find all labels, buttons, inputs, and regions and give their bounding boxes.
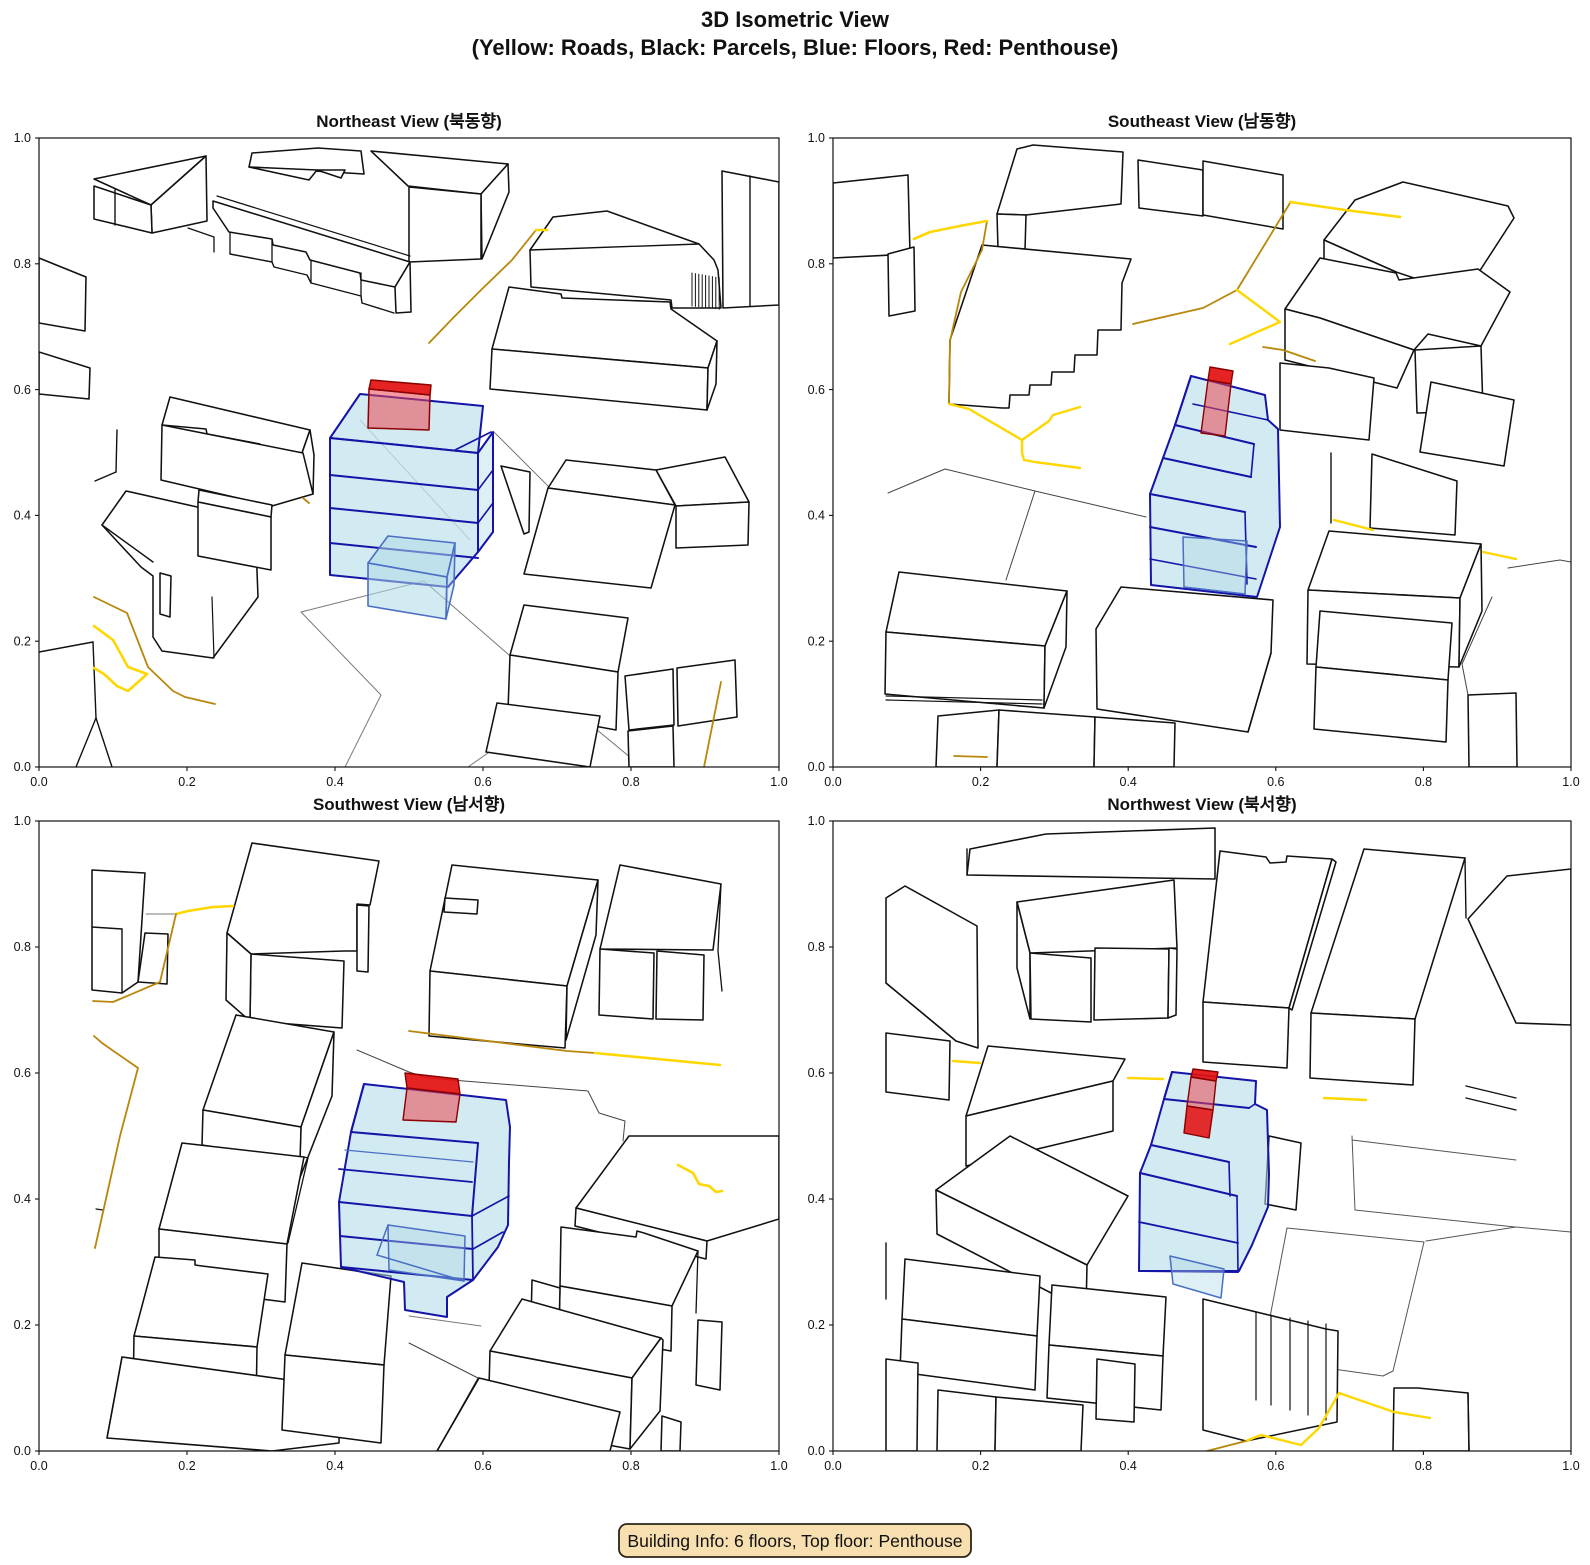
svg-text:0.2: 0.2 <box>972 1459 989 1473</box>
svg-text:0.6: 0.6 <box>474 775 491 789</box>
svg-text:0.4: 0.4 <box>808 1192 825 1206</box>
svg-text:0.2: 0.2 <box>808 634 825 648</box>
svg-text:1.0: 1.0 <box>1562 1459 1579 1473</box>
svg-text:0.2: 0.2 <box>178 775 195 789</box>
svg-text:0.0: 0.0 <box>824 1459 841 1473</box>
svg-text:0.0: 0.0 <box>30 1459 47 1473</box>
svg-text:0.6: 0.6 <box>14 1066 31 1080</box>
svg-text:0.8: 0.8 <box>14 257 31 271</box>
svg-text:Southwest View (남서향): Southwest View (남서향) <box>313 794 505 814</box>
svg-text:0.4: 0.4 <box>808 509 825 523</box>
svg-text:0.6: 0.6 <box>14 383 31 397</box>
svg-text:0.0: 0.0 <box>808 760 825 774</box>
svg-text:0.8: 0.8 <box>1415 1459 1432 1473</box>
svg-text:0.6: 0.6 <box>1267 775 1284 789</box>
svg-text:1.0: 1.0 <box>770 775 787 789</box>
svg-text:0.6: 0.6 <box>474 1459 491 1473</box>
svg-text:0.2: 0.2 <box>808 1318 825 1332</box>
svg-text:0.6: 0.6 <box>1267 1459 1284 1473</box>
svg-text:0.0: 0.0 <box>824 775 841 789</box>
svg-text:(Yellow: Roads, Black: Parcels: (Yellow: Roads, Black: Parcels, Blue: Fl… <box>472 35 1119 60</box>
svg-text:Northeast View (북동향): Northeast View (북동향) <box>316 111 501 131</box>
svg-text:0.2: 0.2 <box>14 1318 31 1332</box>
svg-text:0.4: 0.4 <box>14 509 31 523</box>
svg-text:1.0: 1.0 <box>808 131 825 145</box>
svg-text:0.2: 0.2 <box>178 1459 195 1473</box>
svg-text:Southeast View (남동향): Southeast View (남동향) <box>1108 111 1296 131</box>
svg-text:0.4: 0.4 <box>1120 1459 1137 1473</box>
svg-text:0.8: 0.8 <box>1415 775 1432 789</box>
svg-text:1.0: 1.0 <box>14 131 31 145</box>
svg-text:0.6: 0.6 <box>808 383 825 397</box>
svg-text:0.8: 0.8 <box>808 940 825 954</box>
svg-text:0.2: 0.2 <box>972 775 989 789</box>
svg-text:0.8: 0.8 <box>808 257 825 271</box>
svg-text:0.4: 0.4 <box>326 1459 343 1473</box>
svg-text:0.8: 0.8 <box>14 940 31 954</box>
svg-text:0.0: 0.0 <box>808 1444 825 1458</box>
svg-text:0.4: 0.4 <box>1120 775 1137 789</box>
svg-text:3D Isometric View: 3D Isometric View <box>701 7 890 32</box>
svg-text:0.8: 0.8 <box>622 775 639 789</box>
svg-text:1.0: 1.0 <box>1562 775 1579 789</box>
svg-text:Building Info: 6 floors, Top f: Building Info: 6 floors, Top floor: Pent… <box>627 1531 962 1551</box>
svg-text:1.0: 1.0 <box>14 814 31 828</box>
svg-text:0.6: 0.6 <box>808 1066 825 1080</box>
svg-text:1.0: 1.0 <box>808 814 825 828</box>
svg-text:0.0: 0.0 <box>14 1444 31 1458</box>
svg-text:0.4: 0.4 <box>326 775 343 789</box>
svg-text:Northwest View (북서향): Northwest View (북서향) <box>1107 794 1296 814</box>
svg-text:0.8: 0.8 <box>622 1459 639 1473</box>
svg-text:0.2: 0.2 <box>14 634 31 648</box>
svg-text:1.0: 1.0 <box>770 1459 787 1473</box>
svg-text:0.0: 0.0 <box>14 760 31 774</box>
svg-text:0.4: 0.4 <box>14 1192 31 1206</box>
svg-text:0.0: 0.0 <box>30 775 47 789</box>
